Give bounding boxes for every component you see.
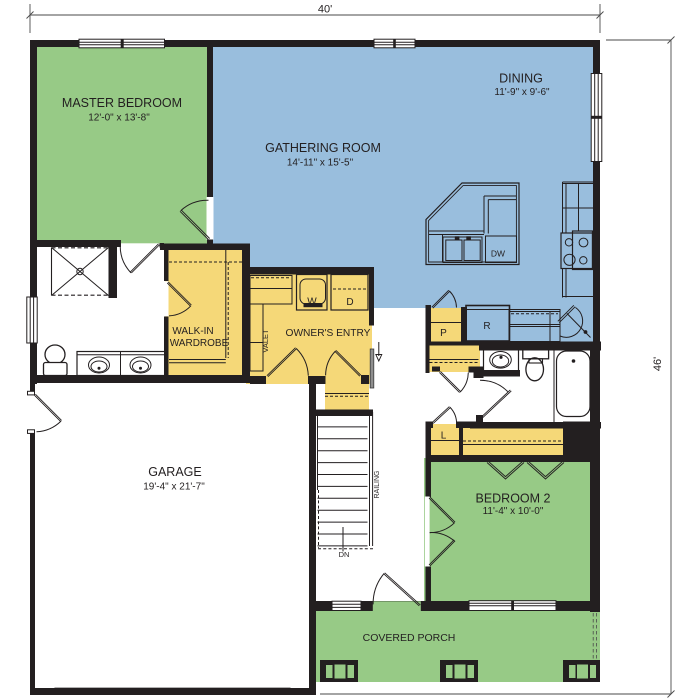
svg-text:D: D [346, 297, 353, 308]
svg-text:WALK-IN: WALK-IN [172, 326, 213, 337]
svg-text:R: R [483, 321, 490, 332]
svg-text:DN: DN [339, 550, 350, 559]
svg-text:W: W [307, 297, 317, 308]
svg-text:COVERED PORCH: COVERED PORCH [363, 632, 456, 644]
svg-text:12'-0" x 13'-8": 12'-0" x 13'-8" [88, 113, 150, 124]
svg-text:WARDROBE: WARDROBE [170, 338, 229, 349]
svg-text:11'-4" x 10'-0": 11'-4" x 10'-0" [483, 506, 544, 517]
svg-text:19'-4" x 21'-7": 19'-4" x 21'-7" [143, 482, 205, 493]
svg-text:DINING: DINING [499, 72, 543, 86]
svg-text:11'-9" x 9'-6": 11'-9" x 9'-6" [494, 87, 550, 98]
svg-text:DW: DW [491, 249, 505, 259]
svg-text:BEDROOM 2: BEDROOM 2 [475, 492, 550, 506]
svg-text:46': 46' [652, 357, 664, 371]
svg-text:GATHERING ROOM: GATHERING ROOM [265, 141, 381, 155]
svg-text:GARAGE: GARAGE [148, 465, 202, 479]
svg-text:MASTER BEDROOM: MASTER BEDROOM [62, 96, 182, 110]
svg-text:L: L [441, 431, 447, 442]
svg-text:14'-11" x 15'-5": 14'-11" x 15'-5" [287, 158, 354, 169]
svg-text:VALET: VALET [261, 329, 270, 353]
svg-text:OWNER'S ENTRY: OWNER'S ENTRY [286, 328, 371, 339]
svg-text:RAILING: RAILING [374, 470, 381, 498]
svg-text:40': 40' [318, 4, 332, 16]
svg-text:P: P [440, 328, 447, 339]
